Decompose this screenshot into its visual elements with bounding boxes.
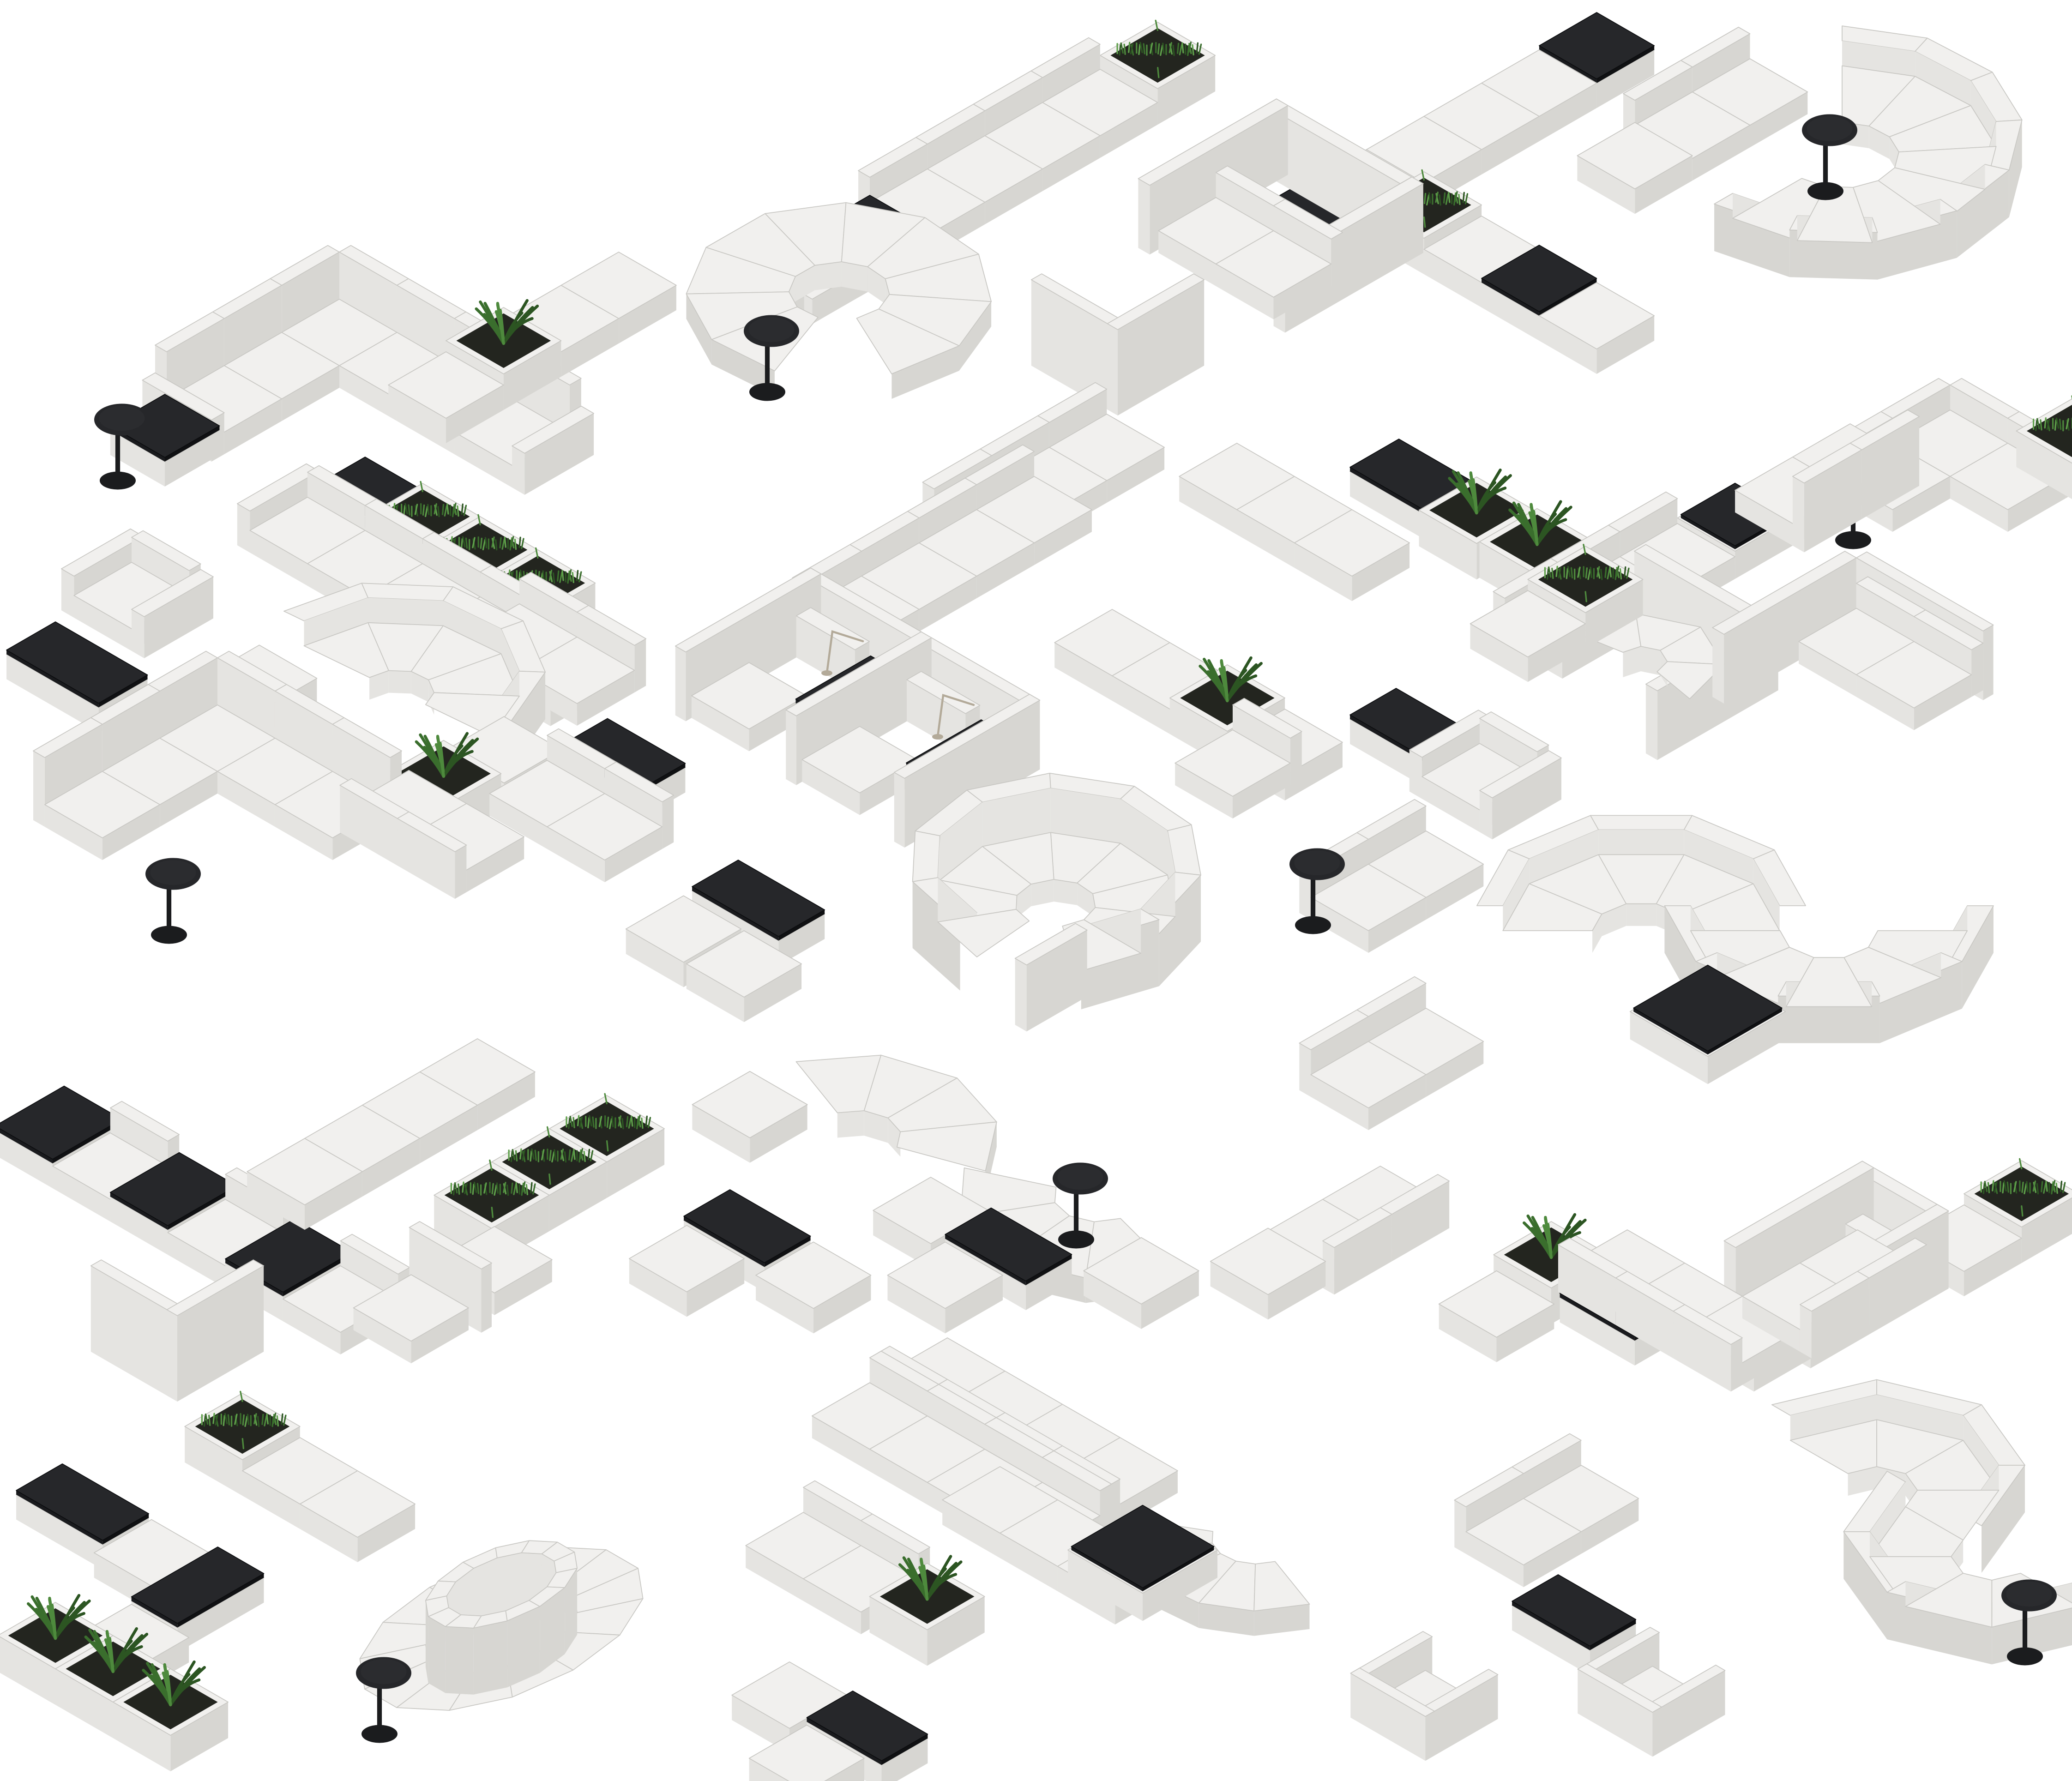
circle-pod-highback [913,773,1201,1032]
v-privacy-screen-a [1031,274,1204,415]
l-cluster-cube-table [732,1662,928,1781]
furniture-catalog-canvas [0,0,2072,1781]
back-to-back-chairs [354,1221,552,1363]
sofa-pair-two-singles [1454,1434,1638,1587]
loveseat-c [1299,977,1483,1130]
bench-with-grass-planter [185,1391,415,1562]
cluster-console-two-cubes [626,860,825,1022]
l-cluster-table-cubes-a [629,1190,871,1333]
armchair-with-console [1350,688,1561,839]
oval-ring-sofa-highback [356,1540,643,1743]
furniture-collage-svg [0,0,2072,1781]
v-privacy-screen-b [91,1260,264,1402]
corner-sofa-small [1211,1166,1450,1319]
cube-armchair-a [1350,1631,1498,1761]
